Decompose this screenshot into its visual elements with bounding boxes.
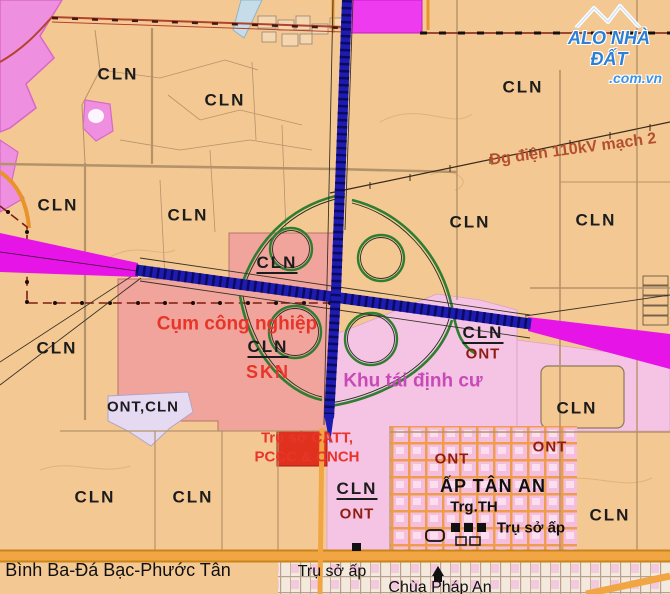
zone-label-cln: CLN bbox=[173, 489, 214, 506]
hamlet-office-label: Trụ sở ấp bbox=[298, 564, 367, 580]
zone-label-cln: CLN bbox=[576, 212, 617, 229]
zone-label-cln: CLN bbox=[557, 400, 598, 417]
area-label-resettlement: Khu tái định cư bbox=[343, 372, 482, 391]
zone-label-ont: ONT bbox=[340, 507, 375, 522]
road-name-label: Bình Ba-Đá Bạc-Phước Tân bbox=[5, 561, 231, 579]
zone-label-cln: CLN bbox=[205, 92, 246, 109]
zone-label-cln: CLN bbox=[503, 79, 544, 96]
hamlet-label: ẤP TÂN AN bbox=[440, 477, 546, 495]
area-label-industrial: Cụm công nghiệp bbox=[157, 315, 317, 334]
area-label-police-hq-2: PCCC & CNCH bbox=[255, 450, 360, 465]
zone-label-ont: ONT bbox=[466, 347, 501, 362]
map-canvas[interactable]: CLNCLNCLNCLNCLNCLNCLNCLNCLNCLNCLNCLNONT,… bbox=[0, 0, 670, 594]
school-label: Trg.TH bbox=[450, 500, 498, 515]
logo-text: ALO NHÀ ĐẤT bbox=[550, 28, 668, 70]
map-labels-layer: CLNCLNCLNCLNCLNCLNCLNCLNCLNCLNCLNCLNONT,… bbox=[0, 0, 670, 594]
zone-label-cln: CLN bbox=[590, 507, 631, 524]
hamlet-office-label: Trụ sở ấp bbox=[497, 521, 565, 536]
zone-label-cln: CLN bbox=[38, 197, 79, 214]
zone-label-cln-underlined: CLN bbox=[248, 338, 289, 358]
zone-label-ont: ONT bbox=[435, 452, 470, 467]
powerline-label: Đg điện 110kV mạch 2 bbox=[489, 131, 658, 169]
zone-label-cln-underlined: CLN bbox=[257, 254, 298, 274]
zone-label-cln: CLN bbox=[98, 66, 139, 83]
house-icon bbox=[574, 2, 644, 28]
zone-label-cln: CLN bbox=[37, 340, 78, 357]
zone-label-cln: CLN bbox=[450, 214, 491, 231]
zone-label-ont-cln: ONT,CLN bbox=[107, 400, 179, 415]
logo-domain: .com.vn bbox=[550, 70, 668, 86]
zone-label-cln: CLN bbox=[75, 489, 116, 506]
zone-label-cln-underlined: CLN bbox=[463, 324, 504, 344]
area-label-police-hq-1: Trụ sở CATT, bbox=[261, 431, 353, 446]
zone-label-cln: CLN bbox=[168, 207, 209, 224]
pagoda-label: Chùa Pháp An bbox=[388, 580, 491, 594]
zone-label-cln-underlined: CLN bbox=[337, 480, 378, 500]
zone-label-ont: ONT bbox=[533, 440, 568, 455]
zone-label-skn: SKN bbox=[246, 363, 290, 381]
alo-nha-dat-logo: ALO NHÀ ĐẤT .com.vn bbox=[550, 2, 668, 60]
